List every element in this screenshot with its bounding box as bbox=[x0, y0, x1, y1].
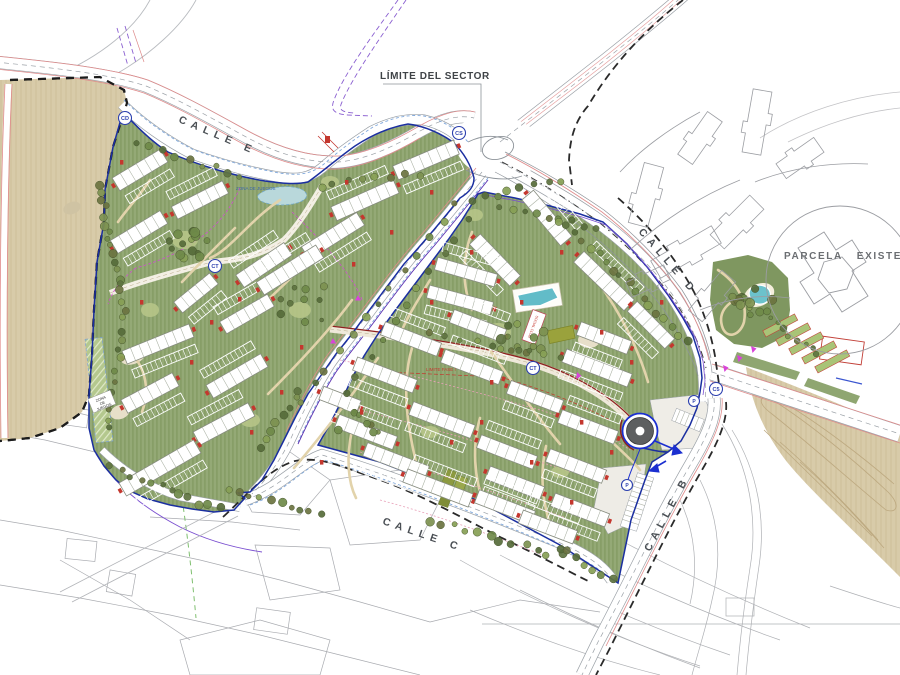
svg-text:CD: CD bbox=[121, 116, 129, 122]
svg-text:CT: CT bbox=[529, 366, 537, 372]
svg-text:LIMITE FASE I: LIMITE FASE I bbox=[426, 367, 456, 372]
svg-text:C5: C5 bbox=[712, 387, 719, 393]
svg-text:CS: CS bbox=[455, 131, 463, 137]
svg-text:PARCELA EXISTENTE: PARCELA EXISTENTE bbox=[784, 251, 900, 262]
svg-text:LÍMITE DEL SECTOR: LÍMITE DEL SECTOR bbox=[380, 69, 490, 82]
svg-text:CT: CT bbox=[211, 264, 219, 270]
svg-text:ZONA DE JUEGOS: ZONA DE JUEGOS bbox=[236, 186, 276, 191]
